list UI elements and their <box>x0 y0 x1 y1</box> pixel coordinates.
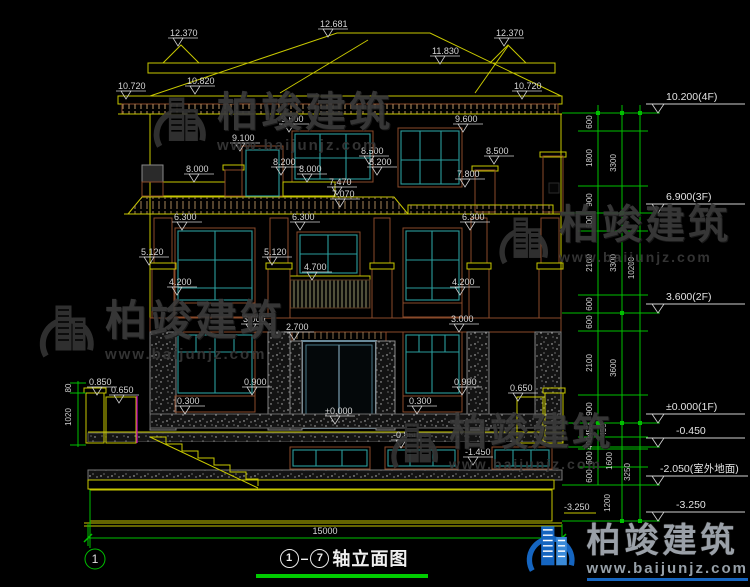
dim-label: 8.000 <box>186 164 209 174</box>
dim-label: 9.600 <box>281 114 304 124</box>
dim-label: 4.700 <box>304 262 327 272</box>
f2-balcony-railing <box>290 280 370 308</box>
dim-v: 3250 <box>623 463 632 481</box>
dim-label: 7.470 <box>329 177 352 187</box>
dim-label: 0.650 <box>111 385 134 395</box>
elevation-svg: 1 15000 12.681 12.370 12.370 11.830 10.8… <box>0 0 750 587</box>
dim-v: 600 <box>585 115 594 129</box>
baijun-logo-color-icon <box>521 521 579 583</box>
dim-v: 450 <box>585 423 594 437</box>
dim-label: 9.600 <box>455 114 478 124</box>
dim-label: 8.500 <box>361 146 384 156</box>
dim-label: 11.830 <box>432 46 459 56</box>
dim-label: 9.100 <box>232 133 255 143</box>
dim-label: -3.250 <box>564 502 590 512</box>
dim-label: 10.720 <box>514 81 542 91</box>
dim-label: 3.000 <box>451 314 474 324</box>
dim-label: 12.370 <box>170 28 198 38</box>
elevation-label-m325: -3.250 <box>676 499 706 511</box>
dim-label: ±0.000 <box>325 406 352 416</box>
dim-label: 6.300 <box>292 212 315 222</box>
footer-brand: 柏竣建筑 <box>587 524 748 558</box>
dim-v: 600 <box>585 215 594 229</box>
elevation-label-outdoor: -2.050(室外地面) <box>660 462 739 475</box>
dim-label: -1.450 <box>465 447 491 457</box>
f3-right-window <box>398 128 462 187</box>
elevation-label-m045: -0.450 <box>676 425 706 437</box>
f2-right-window <box>403 228 462 303</box>
dim-label: 0.850 <box>89 377 112 387</box>
dim-v: 3300 <box>609 254 618 272</box>
dim-label: 6.300 <box>462 212 485 222</box>
dim-v: 80 <box>64 383 73 392</box>
dim-label: 7.070 <box>332 189 355 199</box>
dim-v: 2100 <box>585 354 594 372</box>
dim-v: 600 <box>585 451 594 465</box>
dim-v: 1600 <box>605 452 614 470</box>
dim-label: 5.120 <box>264 247 287 257</box>
second-floor <box>150 218 563 332</box>
title-underline <box>256 574 428 578</box>
dim-label: 8.000 <box>299 164 322 174</box>
dim-label: 2.700 <box>286 322 309 332</box>
dim-label: 7.800 <box>457 169 480 179</box>
dim-label: 12.681 <box>320 19 348 29</box>
title-axis-start: 1 <box>280 549 299 568</box>
dim-v: 900 <box>585 402 594 416</box>
dim-label: 0.900 <box>454 377 477 387</box>
f1-base-band <box>150 414 561 428</box>
dim-v: 3600 <box>609 359 618 377</box>
f3-railing-right <box>283 182 335 196</box>
dim-label: 6.300 <box>174 212 197 222</box>
dim-label: 4.200 <box>452 277 475 287</box>
dim-label: 10.820 <box>187 76 215 86</box>
dim-label: 4.200 <box>169 277 192 287</box>
title-dash: – <box>301 550 309 566</box>
dim-v: 1800 <box>585 149 594 167</box>
cad-elevation-drawing: 1 15000 12.681 12.370 12.370 11.830 10.8… <box>0 0 750 587</box>
dim-label: 3.000 <box>243 314 266 324</box>
dim-label: 8.200 <box>369 157 392 167</box>
f2-balcony-rail-cap <box>290 276 370 280</box>
elevation-label-3f: 6.900(3F) <box>666 191 712 203</box>
dim-v: 1200 <box>603 494 612 512</box>
dim-label: 5.120 <box>141 247 164 257</box>
axis-bubble-number: 1 <box>92 552 99 566</box>
drawing-title: 1 – 7 轴立面图 <box>256 545 432 571</box>
title-axis-end: 7 <box>310 549 329 568</box>
dim-v: 900 <box>585 193 594 207</box>
dim-v: 450 <box>599 423 608 437</box>
f2-floor-band <box>150 318 561 332</box>
elevation-label-2f: 3.600(2F) <box>666 291 712 303</box>
dim-v: 2100 <box>585 254 594 272</box>
f2-left-window <box>175 228 255 303</box>
footer-logo: 柏竣建筑 www.baijunjz.com <box>521 521 748 583</box>
footer-url: www.baijunjz.com <box>587 560 748 581</box>
dim-v: 3300 <box>609 154 618 172</box>
dim-label: 0.900 <box>244 377 267 387</box>
dim-v: 10200 <box>627 256 636 279</box>
dim-label: 8.500 <box>486 146 509 156</box>
dim-v: 600 <box>585 315 594 329</box>
dim-label: 8.200 <box>273 157 296 167</box>
dim-label: 0.300 <box>177 396 200 406</box>
roof <box>118 33 562 114</box>
first-floor <box>150 332 561 430</box>
title-text: 轴立面图 <box>332 545 408 571</box>
dim-label: 0.650 <box>510 383 533 393</box>
right-elevation-markers: 10.200(4F) 6.900(3F) 3.600(2F) ±0.000(1F… <box>646 91 748 521</box>
dim-label: -0.850 <box>393 430 419 440</box>
f3-balcony-door <box>242 146 283 196</box>
dim-v: 1020 <box>64 408 73 426</box>
elevation-label-1f: ±0.000(1F) <box>666 401 717 413</box>
dim-label: 0.300 <box>409 396 432 406</box>
dim-label: 12.370 <box>496 28 524 38</box>
overall-width-label: 15000 <box>312 526 337 536</box>
dim-v: 400 <box>585 436 594 450</box>
f3-railing-left <box>163 182 225 196</box>
foundation-hatch <box>90 490 552 521</box>
elevation-label-4f: 10.200(4F) <box>666 91 717 103</box>
dim-v: 600 <box>585 469 594 483</box>
dim-v: 600 <box>585 297 594 311</box>
f1-left-window <box>175 332 255 396</box>
dim-label: 10.720 <box>118 81 146 91</box>
